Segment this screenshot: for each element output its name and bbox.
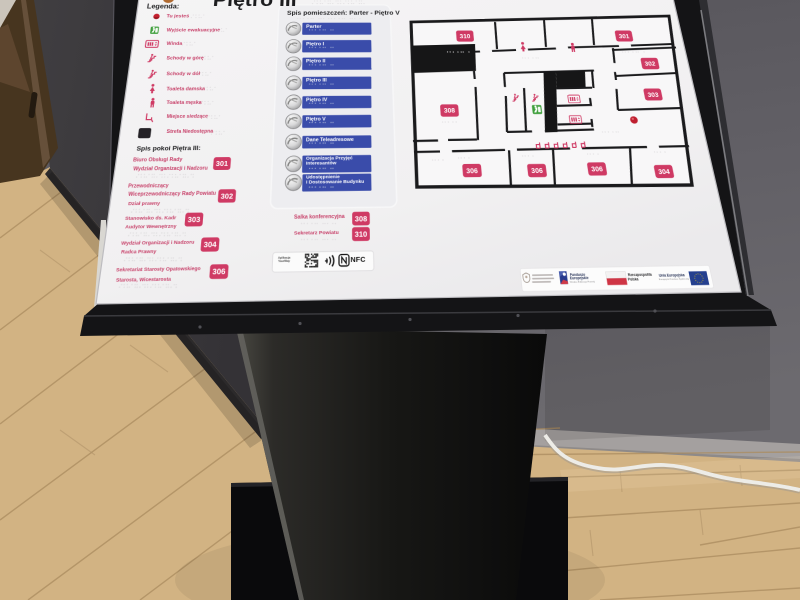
svg-text:304: 304 xyxy=(203,241,217,250)
svg-text:301: 301 xyxy=(618,33,630,40)
svg-text:304: 304 xyxy=(658,168,672,176)
svg-text:302: 302 xyxy=(644,61,657,68)
svg-text:303: 303 xyxy=(187,216,201,225)
svg-text:301: 301 xyxy=(216,160,229,168)
svg-text:306: 306 xyxy=(466,167,479,175)
svg-text:310: 310 xyxy=(355,231,368,240)
svg-text:306: 306 xyxy=(212,268,226,277)
svg-text:308: 308 xyxy=(444,108,456,115)
svg-text:308: 308 xyxy=(355,215,368,224)
svg-text:310: 310 xyxy=(459,33,471,40)
svg-text:302: 302 xyxy=(220,193,234,201)
svg-text:306: 306 xyxy=(591,166,604,174)
svg-text:303: 303 xyxy=(647,92,660,99)
svg-text:306: 306 xyxy=(531,167,544,175)
